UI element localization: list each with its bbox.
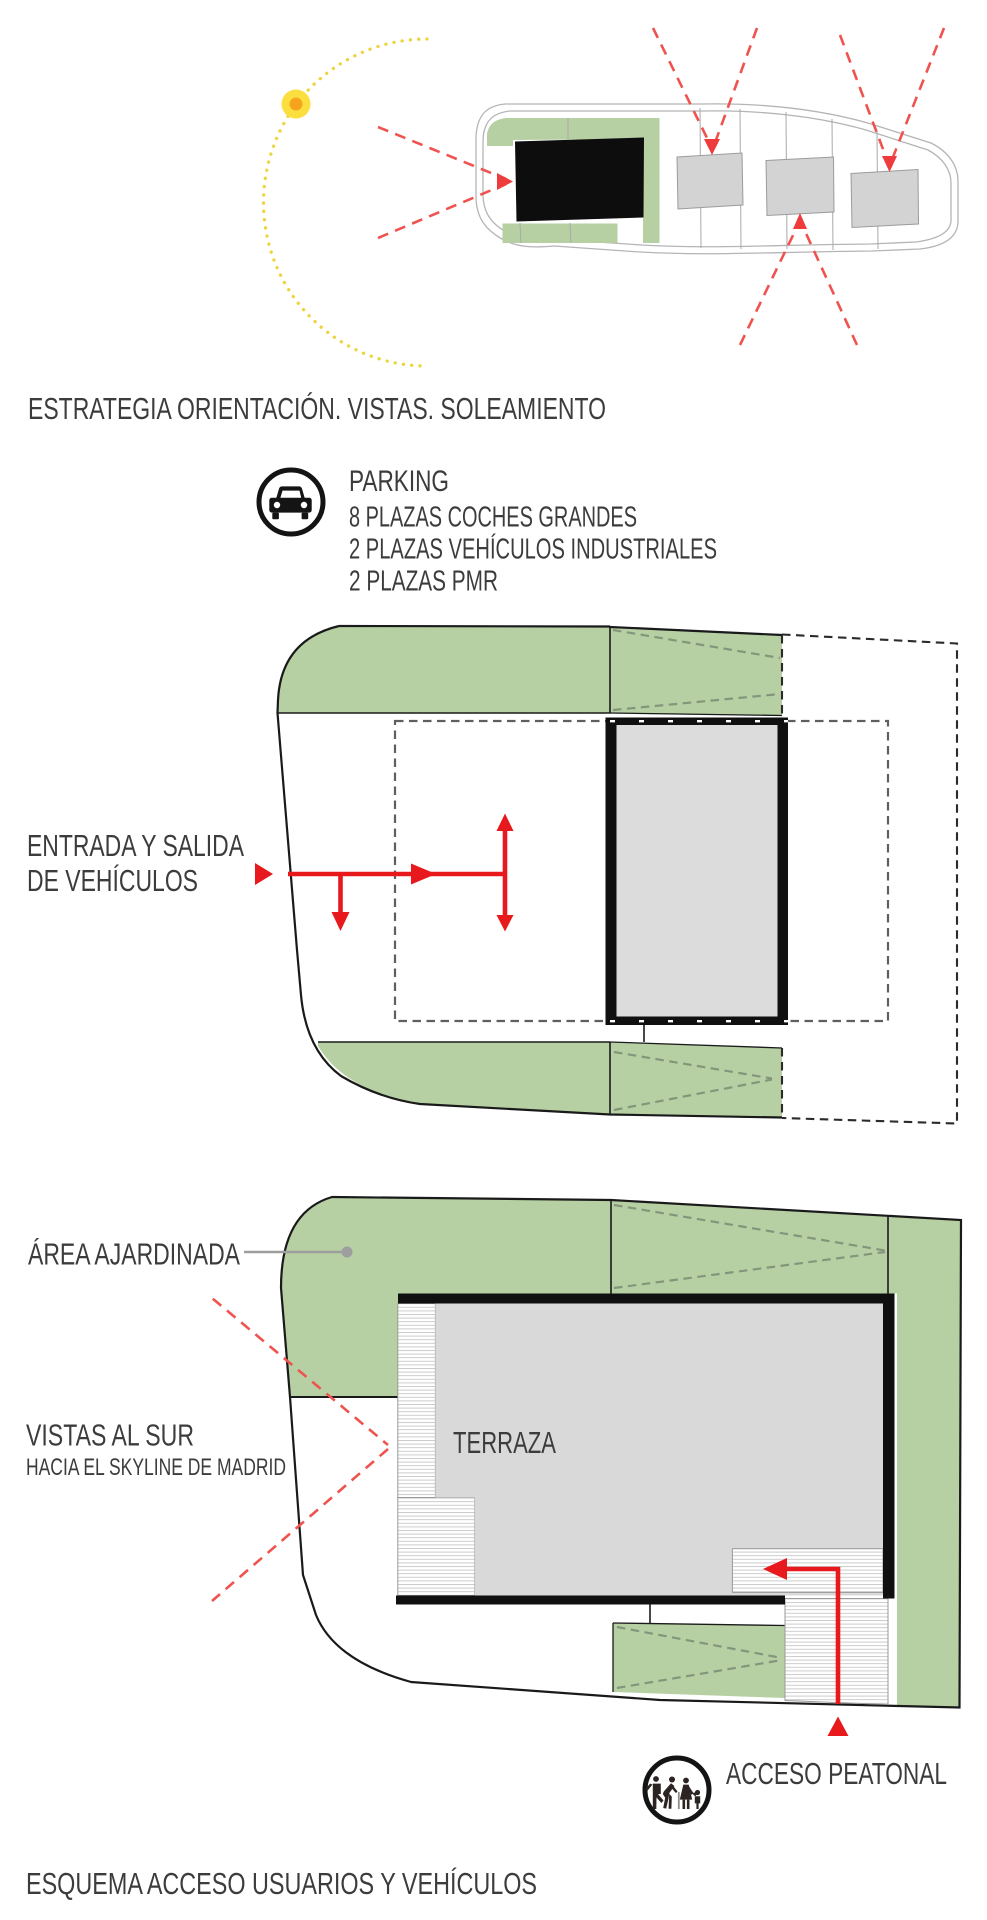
svg-text:PARKING: PARKING xyxy=(349,465,449,498)
svg-text:2 PLAZAS VEHÍCULOS INDUSTRIALE: 2 PLAZAS VEHÍCULOS INDUSTRIALES xyxy=(349,533,717,566)
svg-text:DE VEHÍCULOS: DE VEHÍCULOS xyxy=(27,863,198,898)
svg-text:8 PLAZAS COCHES GRANDES: 8 PLAZAS COCHES GRANDES xyxy=(349,502,637,534)
svg-text:ÁREA AJARDINADA: ÁREA AJARDINADA xyxy=(28,1237,240,1272)
svg-text:ESQUEMA ACCESO USUARIOS Y VEHÍ: ESQUEMA ACCESO USUARIOS Y VEHÍCULOS xyxy=(26,1866,537,1901)
svg-text:ENTRADA Y SALIDA: ENTRADA Y SALIDA xyxy=(27,828,244,863)
svg-text:ESTRATEGIA ORIENTACIÓN. VISTAS: ESTRATEGIA ORIENTACIÓN. VISTAS. SOLEAMIE… xyxy=(28,391,606,426)
svg-text:2 PLAZAS PMR: 2 PLAZAS PMR xyxy=(349,566,498,598)
svg-text:ACCESO PEATONAL: ACCESO PEATONAL xyxy=(726,1756,947,1791)
svg-text:TERRAZA: TERRAZA xyxy=(453,1425,556,1460)
svg-text:VISTAS AL SUR: VISTAS AL SUR xyxy=(26,1418,194,1453)
svg-text:HACIA EL SKYLINE DE MADRID: HACIA EL SKYLINE DE MADRID xyxy=(26,1454,286,1481)
